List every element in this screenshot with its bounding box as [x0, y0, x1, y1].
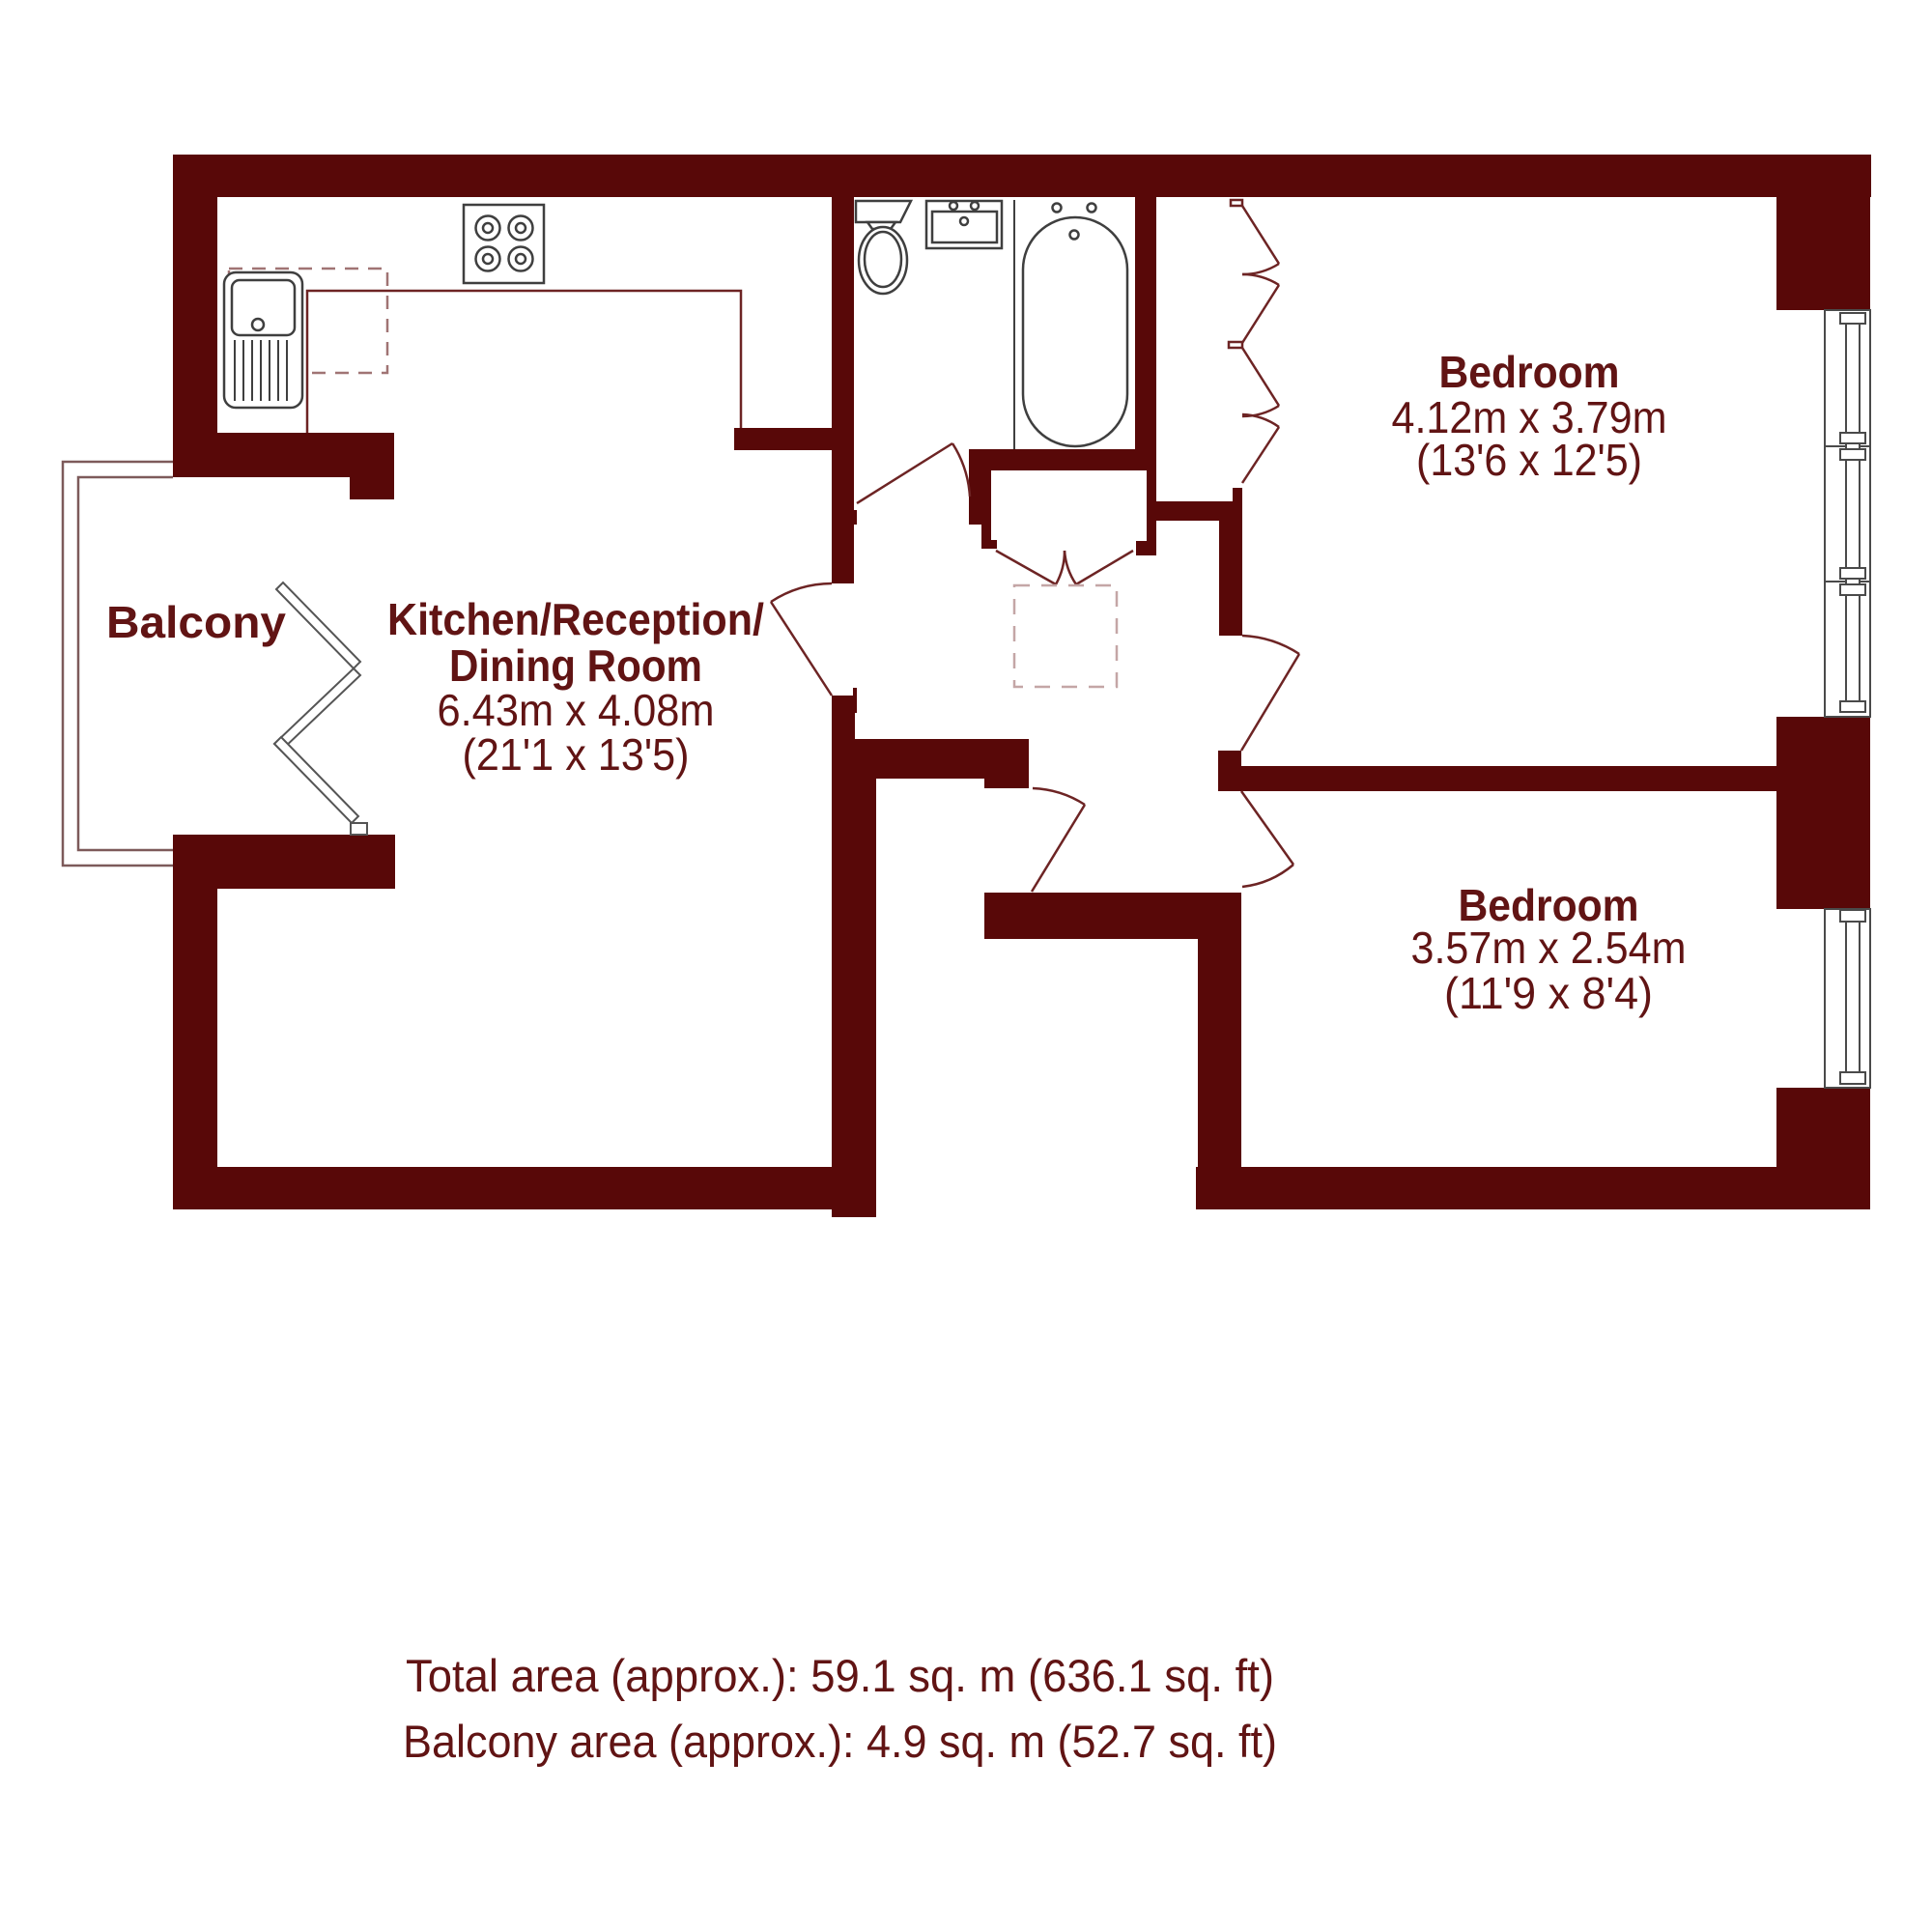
- svg-text:(11'9 x 8'4): (11'9 x 8'4): [1444, 968, 1653, 1018]
- svg-text:Kitchen/Reception/: Kitchen/Reception/: [387, 594, 764, 644]
- svg-text:Total area (approx.): 59.1 sq.: Total area (approx.): 59.1 sq. m (636.1 …: [406, 1650, 1274, 1701]
- svg-text:Balcony area (approx.): 4.9 sq: Balcony area (approx.): 4.9 sq. m (52.7 …: [403, 1716, 1277, 1767]
- svg-text:(13'6 x 12'5): (13'6 x 12'5): [1416, 435, 1642, 485]
- svg-text:Bedroom: Bedroom: [1439, 347, 1620, 397]
- svg-text:Dining Room: Dining Room: [449, 640, 702, 691]
- svg-text:Balcony: Balcony: [106, 597, 286, 647]
- svg-text:6.43m x 4.08m: 6.43m x 4.08m: [438, 685, 715, 735]
- svg-text:3.57m x 2.54m: 3.57m x 2.54m: [1411, 923, 1687, 973]
- svg-text:(21'1 x 13'5): (21'1 x 13'5): [463, 729, 690, 780]
